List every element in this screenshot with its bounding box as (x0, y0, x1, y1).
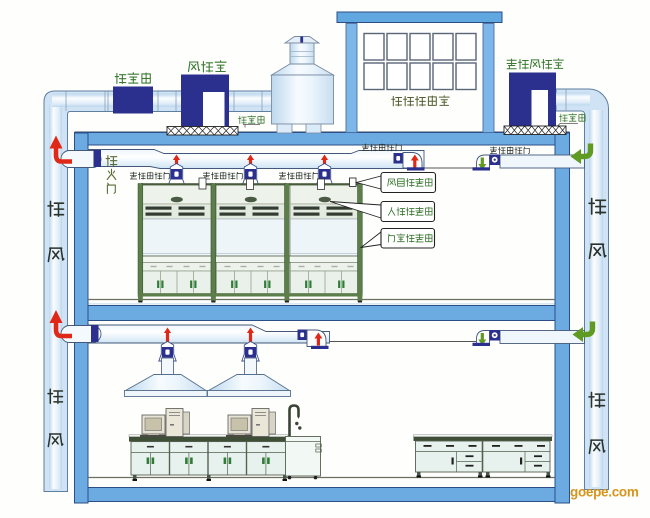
svg-text:goepe.com: goepe.com (570, 485, 639, 500)
